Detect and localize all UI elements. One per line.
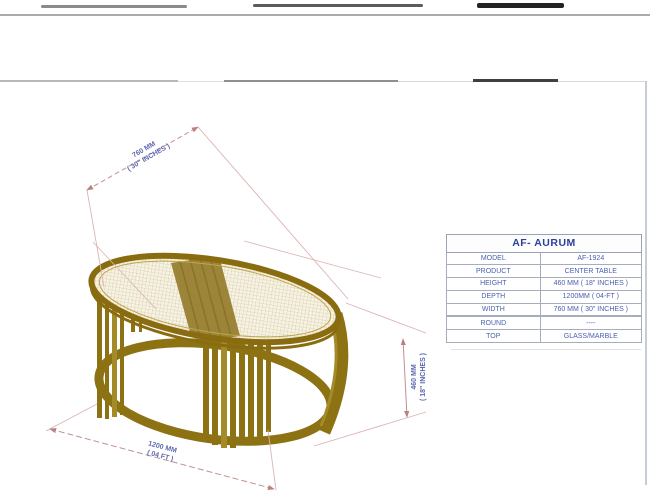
table-row: TOP GLASS/MARBLE	[447, 330, 642, 343]
table-row: PRODUCT CENTER TABLE	[447, 265, 642, 278]
spec-value-round: ----	[540, 316, 641, 329]
spec-label-width: WIDTH	[447, 303, 541, 316]
spec-label-height: HEIGHT	[447, 278, 541, 291]
table-row: ROUND ----	[447, 316, 642, 329]
height-extension-top	[346, 303, 426, 333]
spec-value-top: GLASS/MARBLE	[540, 330, 641, 343]
spec-label-model: MODEL	[447, 252, 541, 265]
spec-table: AF- AURUM MODEL AF-1924 PRODUCT CENTER T…	[446, 234, 642, 343]
spec-label-product: PRODUCT	[447, 265, 541, 278]
spec-label-round: ROUND	[447, 316, 541, 329]
table-body	[85, 241, 344, 455]
table-row: WIDTH 760 MM ( 30" INCHES )	[447, 303, 642, 316]
spec-label-top: TOP	[447, 330, 541, 343]
spec-table-title: AF- AURUM	[447, 235, 642, 253]
table-row: DEPTH 1200MM ( 04-FT )	[447, 290, 642, 303]
page-root: 760 MM ( 30" INCHES ) 460 MM ( 18" INCHE…	[0, 0, 650, 500]
height-dimension-line	[403, 339, 407, 417]
height-dimension-label-mm: 460 MM	[411, 364, 418, 389]
spec-table-header-row: AF- AURUM	[447, 235, 642, 253]
height-dimension-label-inches: ( 18" INCHES )	[420, 353, 427, 401]
table-row: HEIGHT 460 MM ( 18" INCHES )	[447, 278, 642, 291]
spec-value-height: 460 MM ( 18" INCHES )	[540, 278, 641, 291]
spec-value-width: 760 MM ( 30" INCHES )	[540, 303, 641, 316]
spec-value-depth: 1200MM ( 04-FT )	[540, 290, 641, 303]
spec-label-depth: DEPTH	[447, 290, 541, 303]
spec-value-product: CENTER TABLE	[540, 265, 641, 278]
spec-value-model: AF-1924	[540, 252, 641, 265]
table-row: MODEL AF-1924	[447, 252, 642, 265]
depth-extension-left	[46, 404, 97, 431]
